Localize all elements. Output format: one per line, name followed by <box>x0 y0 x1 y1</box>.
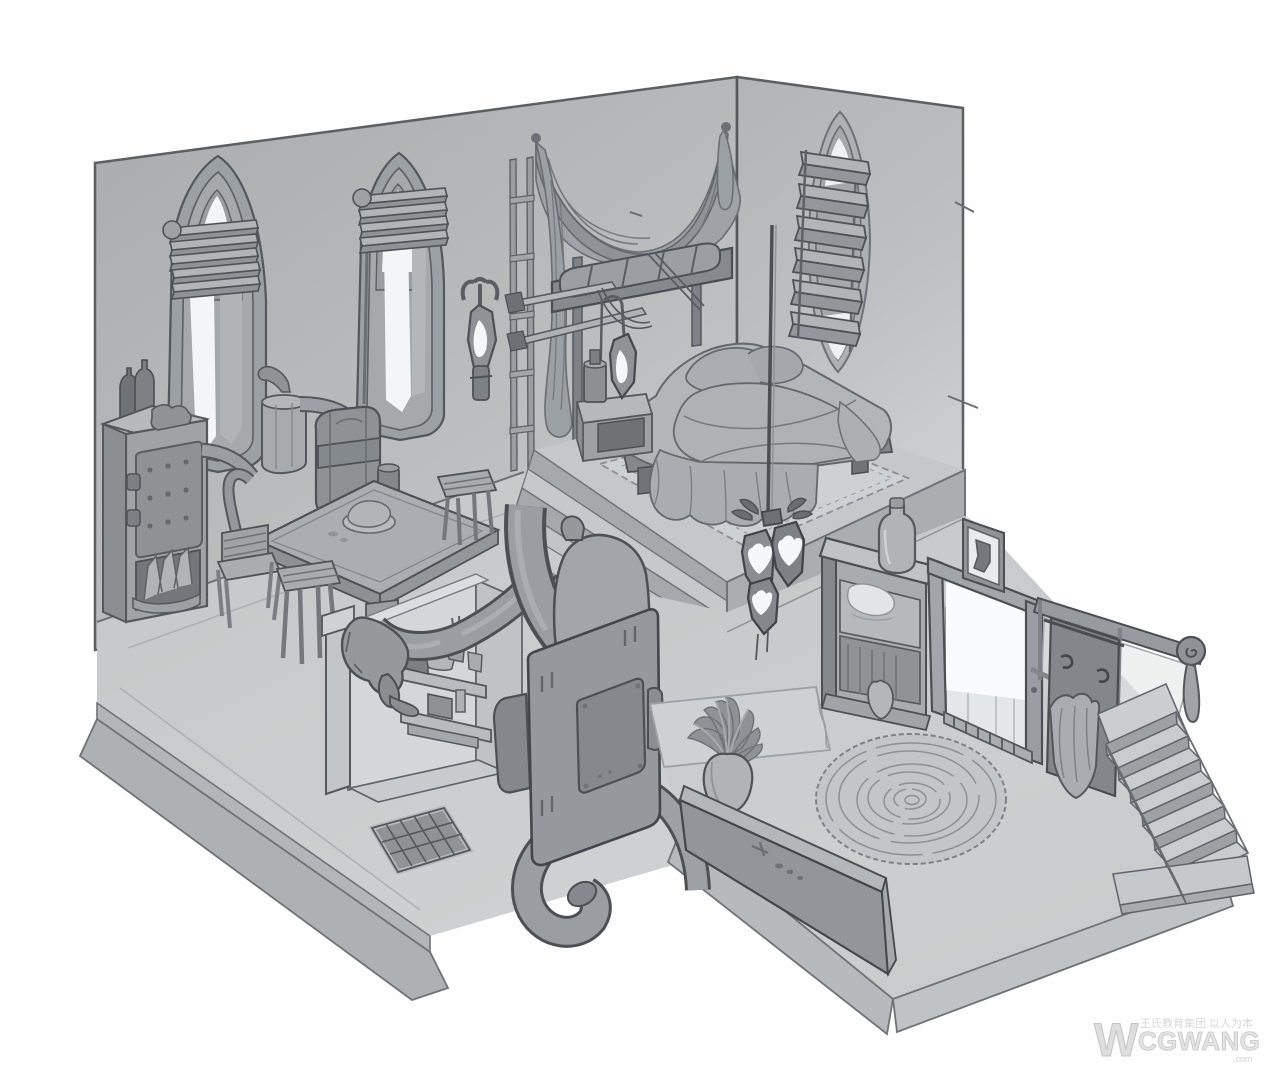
svg-text:.com: .com <box>1233 1054 1253 1064</box>
svg-text:W: W <box>1094 1013 1139 1066</box>
svg-text:CGWANG: CGWANG <box>1138 1026 1260 1056</box>
